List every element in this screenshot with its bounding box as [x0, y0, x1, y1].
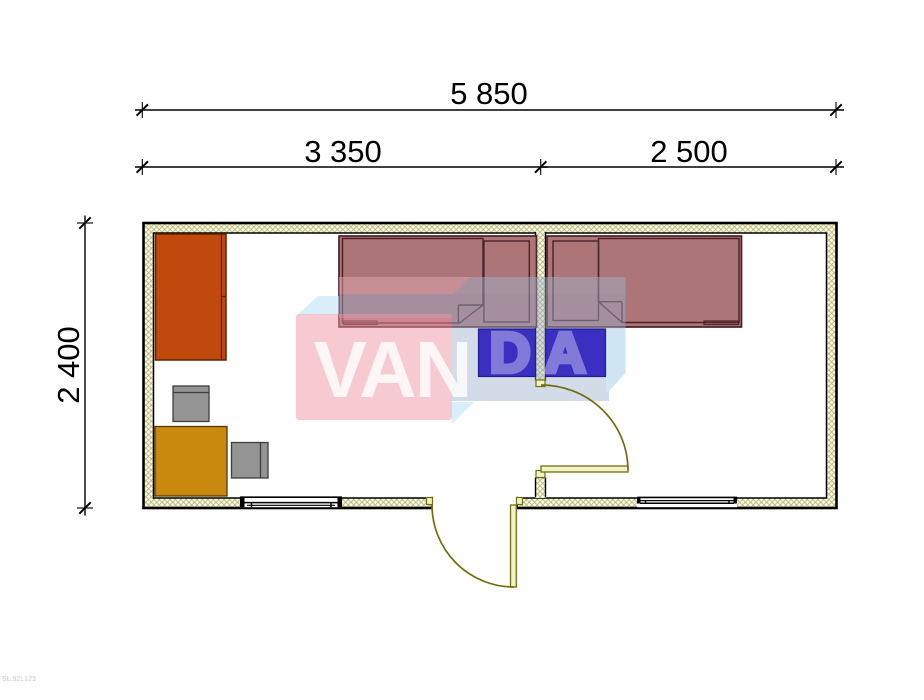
svg-text:5 850: 5 850: [450, 76, 528, 111]
svg-text:2 400: 2 400: [51, 326, 86, 404]
svg-text:VAN: VAN: [314, 325, 471, 414]
svg-text:SL.92L123: SL.92L123: [2, 676, 36, 683]
svg-text:3 350: 3 350: [304, 134, 382, 169]
svg-text:DA: DA: [490, 321, 600, 385]
svg-text:2 500: 2 500: [650, 134, 728, 169]
